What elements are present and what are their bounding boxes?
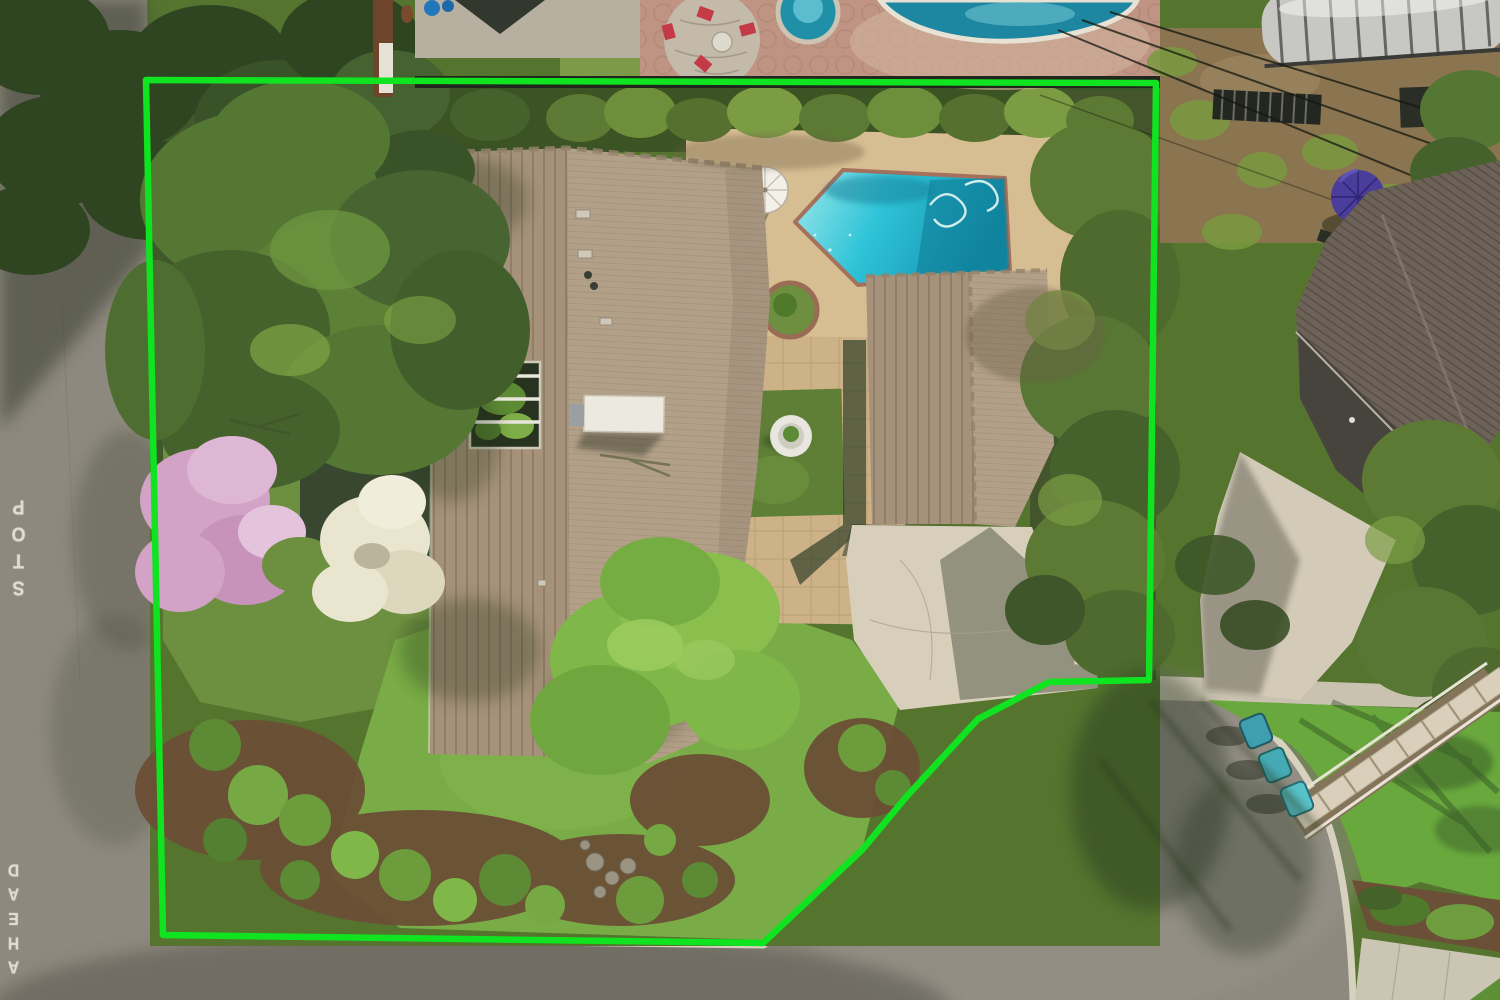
roof-tree-shadow3 [400, 598, 540, 702]
aerial-property-photo: STOP AHEAD [0, 0, 1500, 1000]
circular-planter [763, 283, 817, 337]
lumber-rack [1212, 89, 1321, 125]
person-on-patio [401, 5, 413, 23]
ahead-road-marking: AHEAD [4, 856, 22, 978]
blue-bin2 [442, 0, 454, 12]
patio-table [712, 32, 732, 52]
stop-road-marking: STOP [8, 491, 28, 599]
neighbor-spa [778, 0, 838, 42]
pool-leaf-shadow [825, 176, 935, 204]
white-post [379, 43, 393, 93]
deck-hedge-shadow [675, 134, 865, 170]
chimney [570, 395, 664, 456]
deck-tree-shadow [965, 287, 1105, 383]
blue-bin1 [424, 0, 440, 16]
aerial-scene [0, 0, 1500, 1000]
